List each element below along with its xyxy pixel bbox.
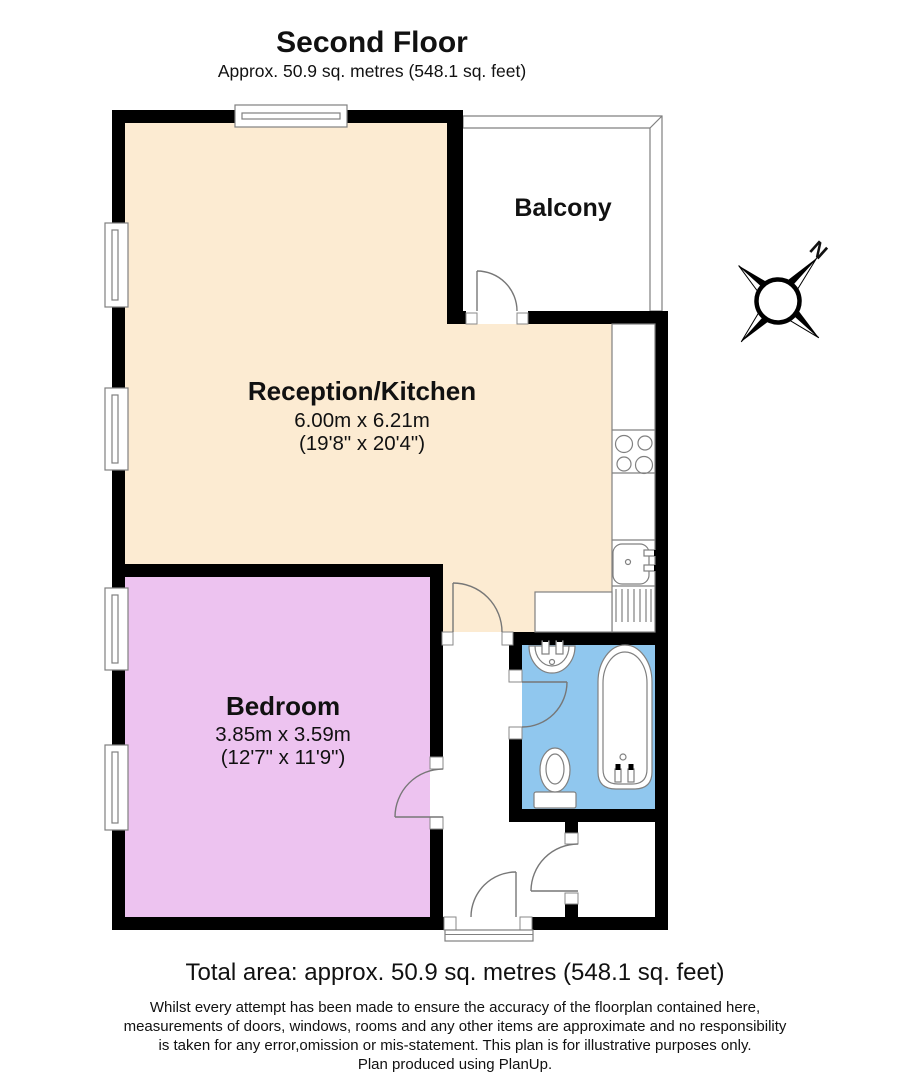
floorplan-drawing: N Second Floor Approx. 50.9 sq. metres (…	[0, 0, 909, 1080]
window-bedroom-2	[105, 745, 128, 830]
window-top	[235, 105, 347, 127]
wall-bedroom-top	[112, 564, 443, 577]
window-reception-2	[105, 388, 128, 470]
disclaimer-line-3: is taken for any error,omission or mis-s…	[158, 1037, 751, 1054]
compass-rose: N	[702, 209, 870, 379]
wall-bottom	[112, 917, 668, 930]
bedroom-label: Bedroom	[226, 691, 340, 721]
page-subtitle: Approx. 50.9 sq. metres (548.1 sq. feet)	[218, 61, 526, 81]
reception-size-metric: 6.00m x 6.21m	[294, 409, 430, 432]
wall-right	[655, 311, 668, 930]
wall-balcony-divider	[447, 110, 463, 324]
entrance-door	[471, 872, 516, 917]
reception-size-imperial: (19'8" x 20'4")	[299, 432, 425, 455]
floorplan-page: N Second Floor Approx. 50.9 sq. metres (…	[0, 0, 909, 1080]
window-reception-1	[105, 223, 128, 307]
compass-north-label: N	[805, 237, 832, 264]
kitchen-counter-bottom	[535, 592, 612, 632]
page-title: Second Floor	[276, 26, 468, 59]
bathtub	[598, 645, 652, 789]
reception-label: Reception/Kitchen	[248, 376, 476, 406]
entrance-threshold	[445, 930, 533, 941]
window-bedroom-1	[105, 588, 128, 670]
disclaimer-line-2: measurements of doors, windows, rooms an…	[124, 1018, 787, 1035]
bedroom-size-imperial: (12'7" x 11'9")	[221, 746, 346, 769]
disclaimer-line-1: Whilst every attempt has been made to en…	[150, 999, 760, 1016]
balcony-label: Balcony	[514, 194, 611, 222]
total-area: Total area: approx. 50.9 sq. metres (548…	[186, 959, 725, 986]
bedroom-size-metric: 3.85m x 3.59m	[215, 723, 351, 746]
wall-bedroom-right	[430, 564, 443, 930]
disclaimer-line-4: Plan produced using PlanUp.	[358, 1056, 552, 1073]
wall-bathroom-bottom	[509, 809, 655, 822]
